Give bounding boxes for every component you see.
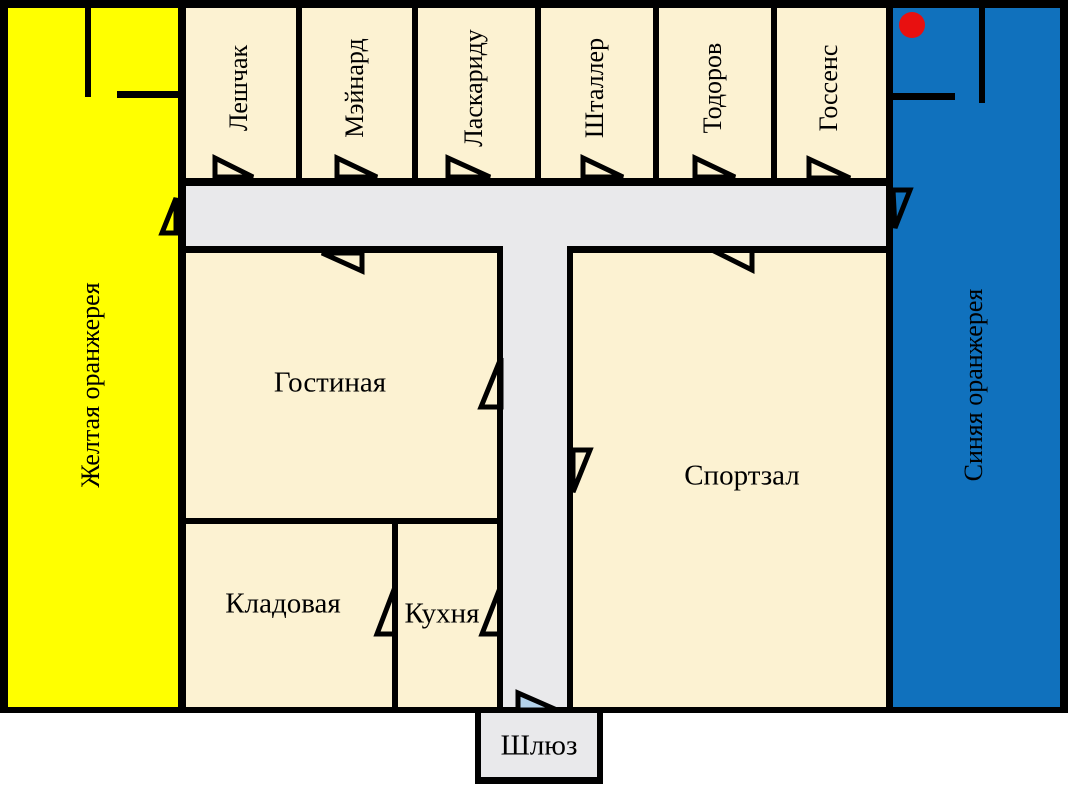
corridor-horizontal-area [186, 186, 886, 246]
blue-nook-wall-horizontal [893, 93, 955, 100]
cabin-meinard-label: Мэйнард [340, 38, 369, 138]
yellow-greenhouse-label: Желтая оранжерея [76, 282, 105, 487]
yellow-nook-wall-horizontal [117, 91, 178, 98]
yellow-nook-wall-vertical [85, 8, 91, 97]
living-room-label: Гостиная [274, 367, 386, 399]
cabin-todorov-label: Тодоров [698, 43, 727, 134]
cabin-shtaller-label: Шталлер [580, 38, 609, 138]
gym-label: Спортзал [684, 460, 800, 492]
airlock-label: Шлюз [501, 730, 578, 762]
cabin-gossens-label: Госсенс [814, 45, 843, 132]
cabin-laskaridu-label: Ласкариду [459, 29, 488, 147]
cabin-leshchak-label: Лешчак [224, 45, 253, 132]
floor-plan-page: Желтая оранжерея Синяя оранжерея Лешчак … [0, 0, 1068, 790]
red-dot-marker [899, 12, 925, 38]
blue-greenhouse-label: Синяя оранжерея [959, 289, 988, 482]
corridor-vertical-area [503, 246, 567, 707]
floor-plan: Желтая оранжерея Синяя оранжерея Лешчак … [0, 0, 1068, 790]
kitchen-label: Кухня [404, 598, 479, 630]
storage-label: Кладовая [225, 588, 340, 620]
blue-nook-wall-vertical [979, 8, 985, 103]
